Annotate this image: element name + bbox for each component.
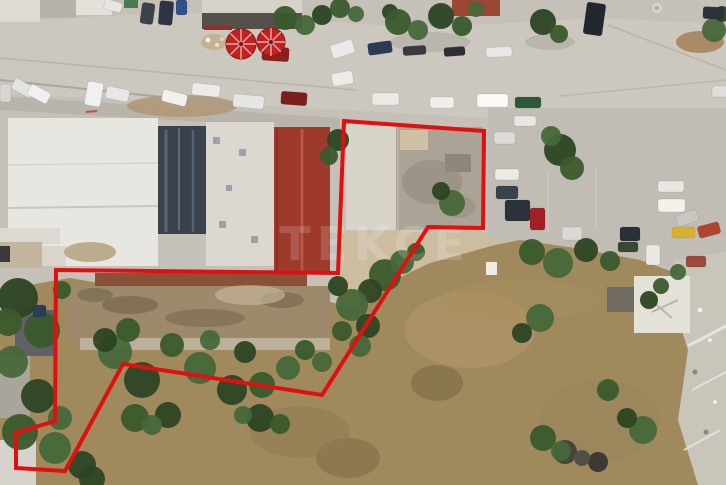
- ac-unit: [239, 149, 246, 156]
- rubble-speck: [704, 430, 709, 435]
- warehouse-stain: [165, 309, 245, 327]
- tree: [234, 406, 252, 424]
- car: [486, 46, 512, 57]
- tree: [21, 379, 55, 413]
- tree: [617, 408, 637, 428]
- tree: [348, 6, 364, 22]
- red-paint-mark: [86, 111, 97, 112]
- car: [686, 256, 706, 267]
- tree: [432, 182, 450, 200]
- ac-unit: [213, 137, 220, 144]
- car: [477, 94, 508, 107]
- roof-clutter: [64, 242, 116, 262]
- green-awning: [124, 0, 138, 8]
- tree: [428, 3, 454, 29]
- tree: [550, 25, 568, 43]
- tree: [276, 356, 300, 380]
- tree: [116, 318, 140, 342]
- grass-dark-patch: [411, 365, 463, 401]
- rubble-speck: [708, 338, 712, 342]
- tree: [543, 248, 573, 278]
- car: [658, 199, 685, 212]
- rubble-speck: [693, 370, 698, 375]
- car: [372, 93, 399, 105]
- tree: [452, 16, 472, 36]
- tree: [93, 328, 117, 352]
- car: [583, 2, 606, 36]
- car: [620, 227, 640, 241]
- tree: [541, 126, 561, 146]
- debris-pile: [574, 450, 590, 466]
- car: [232, 94, 264, 110]
- trash-item: [215, 43, 219, 47]
- tree: [200, 330, 220, 350]
- car: [646, 245, 660, 265]
- left-edge-white-roof: [42, 246, 66, 266]
- tree: [160, 333, 184, 357]
- dark-shed: [607, 287, 634, 312]
- tree: [48, 406, 72, 430]
- tree: [468, 1, 484, 17]
- small-white-structure: [486, 262, 497, 275]
- plot-building-rooftop-unit: [400, 130, 428, 150]
- tree: [640, 291, 658, 309]
- car: [158, 0, 174, 25]
- trash-item: [220, 37, 224, 41]
- car: [530, 208, 545, 230]
- umbrella-pole: [239, 42, 243, 46]
- tree: [332, 321, 352, 341]
- tree: [551, 441, 571, 461]
- car: [703, 6, 725, 19]
- car: [658, 181, 684, 192]
- aerial-scene: TEKCE: [0, 0, 726, 485]
- red-umbrella: [226, 29, 256, 59]
- tree: [597, 379, 619, 401]
- umbrella-pole: [269, 40, 273, 44]
- aerial-plot-photo: TEKCE: [0, 0, 726, 485]
- car: [494, 132, 515, 144]
- car: [140, 2, 156, 25]
- car: [495, 169, 519, 180]
- tree: [39, 432, 71, 464]
- tree: [142, 415, 162, 435]
- trash-item: [206, 38, 211, 43]
- car: [712, 86, 726, 97]
- tree: [234, 341, 256, 363]
- tree: [328, 276, 348, 296]
- left-edge-white-roof: [0, 228, 60, 244]
- warehouse-highlight: [215, 285, 285, 305]
- tree: [295, 340, 315, 360]
- warehouse-stain: [77, 288, 113, 302]
- car: [191, 83, 220, 98]
- car: [562, 227, 582, 240]
- car: [514, 116, 536, 126]
- market-stall-red-edge: [204, 26, 232, 30]
- watermark-text: TEKCE: [279, 217, 471, 271]
- tree: [560, 156, 584, 180]
- car: [33, 305, 46, 317]
- tree: [385, 9, 411, 35]
- ac-unit: [219, 221, 226, 228]
- rubble-speck: [698, 308, 703, 313]
- car: [403, 45, 427, 56]
- rubble-speck: [713, 400, 717, 404]
- ac-unit: [251, 236, 258, 243]
- car: [496, 186, 518, 199]
- car: [0, 84, 11, 102]
- car: [505, 200, 530, 221]
- tree: [295, 15, 315, 35]
- car: [281, 91, 308, 106]
- tree: [312, 352, 332, 372]
- tree: [670, 264, 686, 280]
- car: [672, 227, 695, 238]
- tree: [270, 414, 290, 434]
- tree: [653, 278, 669, 294]
- car: [515, 97, 541, 108]
- top-left-roof: [40, 0, 76, 18]
- tree: [320, 147, 338, 165]
- tree: [519, 239, 545, 265]
- warehouse-stain: [102, 296, 158, 314]
- car: [444, 46, 466, 56]
- tree: [312, 5, 332, 25]
- tree: [408, 20, 428, 40]
- tree: [574, 238, 598, 262]
- car: [430, 97, 454, 108]
- car: [618, 242, 638, 252]
- tree: [273, 6, 297, 30]
- top-left-roof: [0, 0, 40, 22]
- trash-pile: [201, 34, 227, 50]
- plot-building-white-wing: [346, 124, 398, 230]
- car: [176, 0, 187, 15]
- ac-unit: [226, 185, 232, 191]
- grass-light-patch: [440, 280, 600, 320]
- tree: [512, 323, 532, 343]
- red-umbrella: [257, 28, 285, 56]
- manhole-cover-inner: [655, 6, 660, 11]
- debris-pile: [588, 452, 608, 472]
- tree: [600, 251, 620, 271]
- left-edge-kiosk: [0, 246, 10, 262]
